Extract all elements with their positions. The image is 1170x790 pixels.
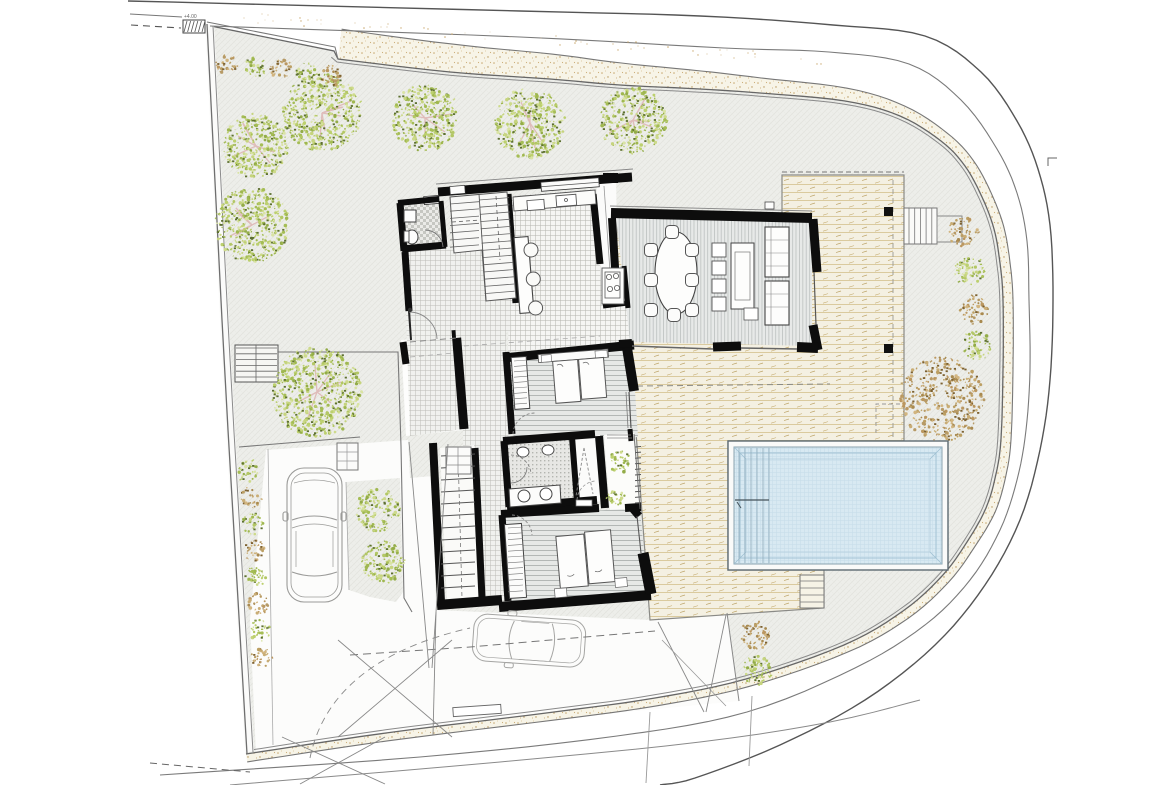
svg-text:+4.00: +4.00 <box>184 14 197 20</box>
